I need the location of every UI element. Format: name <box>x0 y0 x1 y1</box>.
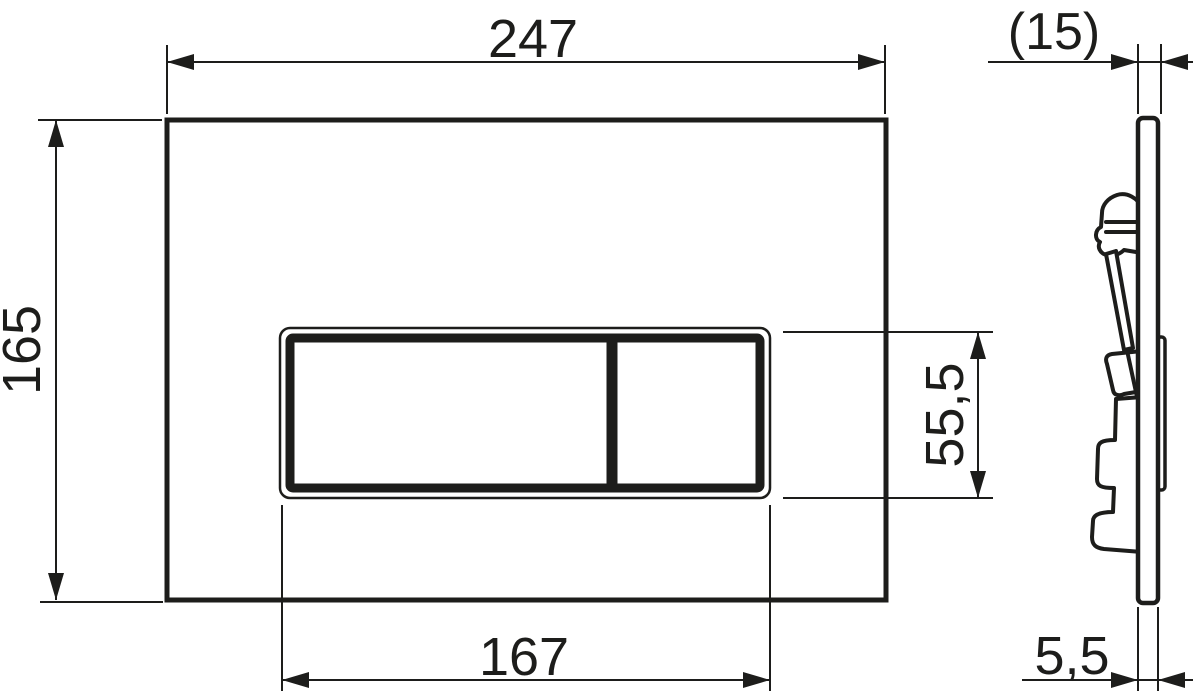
dim-arrow-bottom <box>48 573 64 600</box>
front-view <box>167 120 886 600</box>
dim-arrow-left <box>1111 54 1138 70</box>
dim-label-plate-width: 247 <box>488 9 578 69</box>
dim-label-button-height: 55,5 <box>915 362 975 467</box>
side-clip-leg <box>1106 251 1133 350</box>
technical-drawing-canvas: 247 (15) 165 55,5 167 <box>0 0 1200 695</box>
dim-arrow-top <box>48 120 64 147</box>
dim-plate-thickness: 5,5 <box>1022 607 1193 691</box>
dim-arrow-right <box>1161 54 1188 70</box>
dim-label-plate-height: 165 <box>0 305 52 395</box>
side-plate-bar <box>1138 118 1158 603</box>
dim-arrow-right <box>858 54 885 70</box>
dim-label-total-depth: (15) <box>1008 3 1100 61</box>
dim-plate-height: 165 <box>0 120 163 602</box>
dim-label-button-width: 167 <box>479 627 569 687</box>
side-clip-lower-steps <box>1092 397 1142 552</box>
dim-total-depth: (15) <box>988 3 1193 114</box>
side-view <box>1092 118 1165 603</box>
dim-arrow-top <box>970 332 986 359</box>
dim-arrow-left <box>1111 672 1138 688</box>
dim-arrow-left <box>282 672 309 688</box>
dim-label-plate-thickness: 5,5 <box>1034 626 1109 686</box>
button-recess-outer <box>280 328 770 498</box>
dim-arrow-right <box>1158 672 1185 688</box>
technical-drawing-page: 247 (15) 165 55,5 167 <box>0 0 1200 695</box>
dim-arrow-right <box>743 672 770 688</box>
side-clip-top-hook <box>1096 194 1142 255</box>
dim-arrow-bottom <box>970 471 986 498</box>
dim-arrow-left <box>167 54 194 70</box>
dim-plate-width: 247 <box>167 9 885 114</box>
